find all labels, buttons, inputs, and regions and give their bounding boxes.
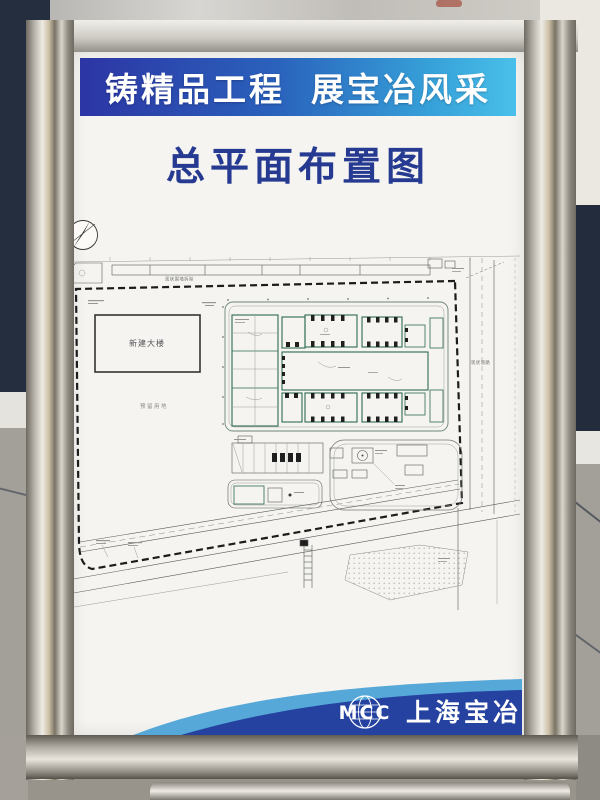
- site-plan-drawing: 现状围墙拆除 新建大楼 预留用地: [68, 212, 524, 616]
- workshop-south-2: [362, 393, 402, 422]
- new-building: 新建大楼: [88, 300, 216, 372]
- slogan-left: 铸精品工程: [105, 63, 285, 111]
- notice-board: 铸精品工程 展宝冶风采 总平面布置图: [70, 50, 526, 737]
- slogan-banner: 铸精品工程 展宝冶风采: [80, 58, 516, 116]
- pole-symbol: [300, 540, 312, 588]
- ground: [576, 735, 600, 800]
- ground: [0, 735, 28, 800]
- workshop-compound: [222, 297, 448, 431]
- footer-swoosh: MCC 上海宝冶: [76, 676, 522, 737]
- drawing-frame-lines: [70, 256, 520, 572]
- company-name: 上海宝冶: [406, 698, 522, 727]
- background-red-object: [436, 0, 462, 7]
- central-corridor: [282, 352, 428, 390]
- west-block: [232, 315, 278, 426]
- frame-top-crossbar: [50, 0, 540, 22]
- south-structures: [228, 436, 462, 510]
- workshop-north-1: [305, 315, 357, 347]
- tank-unit: [352, 448, 387, 463]
- frame-bottom-rail: [26, 735, 578, 779]
- stair-block-south: [282, 393, 302, 422]
- frame-lower-crossbar: [150, 782, 570, 800]
- slogan-right: 展宝冶风采: [311, 63, 491, 111]
- pool-enclosure: [228, 480, 322, 508]
- footer-band: MCC 上海宝冶: [76, 676, 522, 737]
- workshop-north-3: [405, 325, 425, 347]
- frame-right-post: [524, 20, 576, 780]
- new-building-label: 新建大楼: [129, 338, 165, 348]
- east-annex: [430, 318, 443, 422]
- north-strip-structures: 现状围墙拆除: [68, 263, 430, 283]
- workshop-south-3: [405, 393, 425, 415]
- workshop-north-2: [362, 317, 402, 347]
- long-utility-building: [232, 436, 323, 473]
- reserved-land-label: 预留用地: [140, 402, 168, 410]
- workshop-south-1: [305, 393, 357, 422]
- stair-block-north: [282, 317, 305, 348]
- mcc-logo-text: MCC: [339, 702, 392, 724]
- frame-left-post: [26, 20, 74, 780]
- dimension-ticks: [222, 297, 429, 425]
- existing-wall-label: 现状围墙拆除: [165, 276, 194, 283]
- site-boundary: [76, 281, 462, 569]
- frame-top-rail: [26, 20, 578, 52]
- site-plan: 现状围墙拆除 新建大楼 预留用地: [68, 212, 524, 616]
- south-roads: [68, 480, 520, 610]
- photo-of-site-notice-board: 铸精品工程 展宝冶风采 总平面布置图: [0, 0, 600, 800]
- drawing-title: 总平面布置图: [70, 136, 526, 192]
- existing-road-label: 现状道路: [471, 359, 490, 366]
